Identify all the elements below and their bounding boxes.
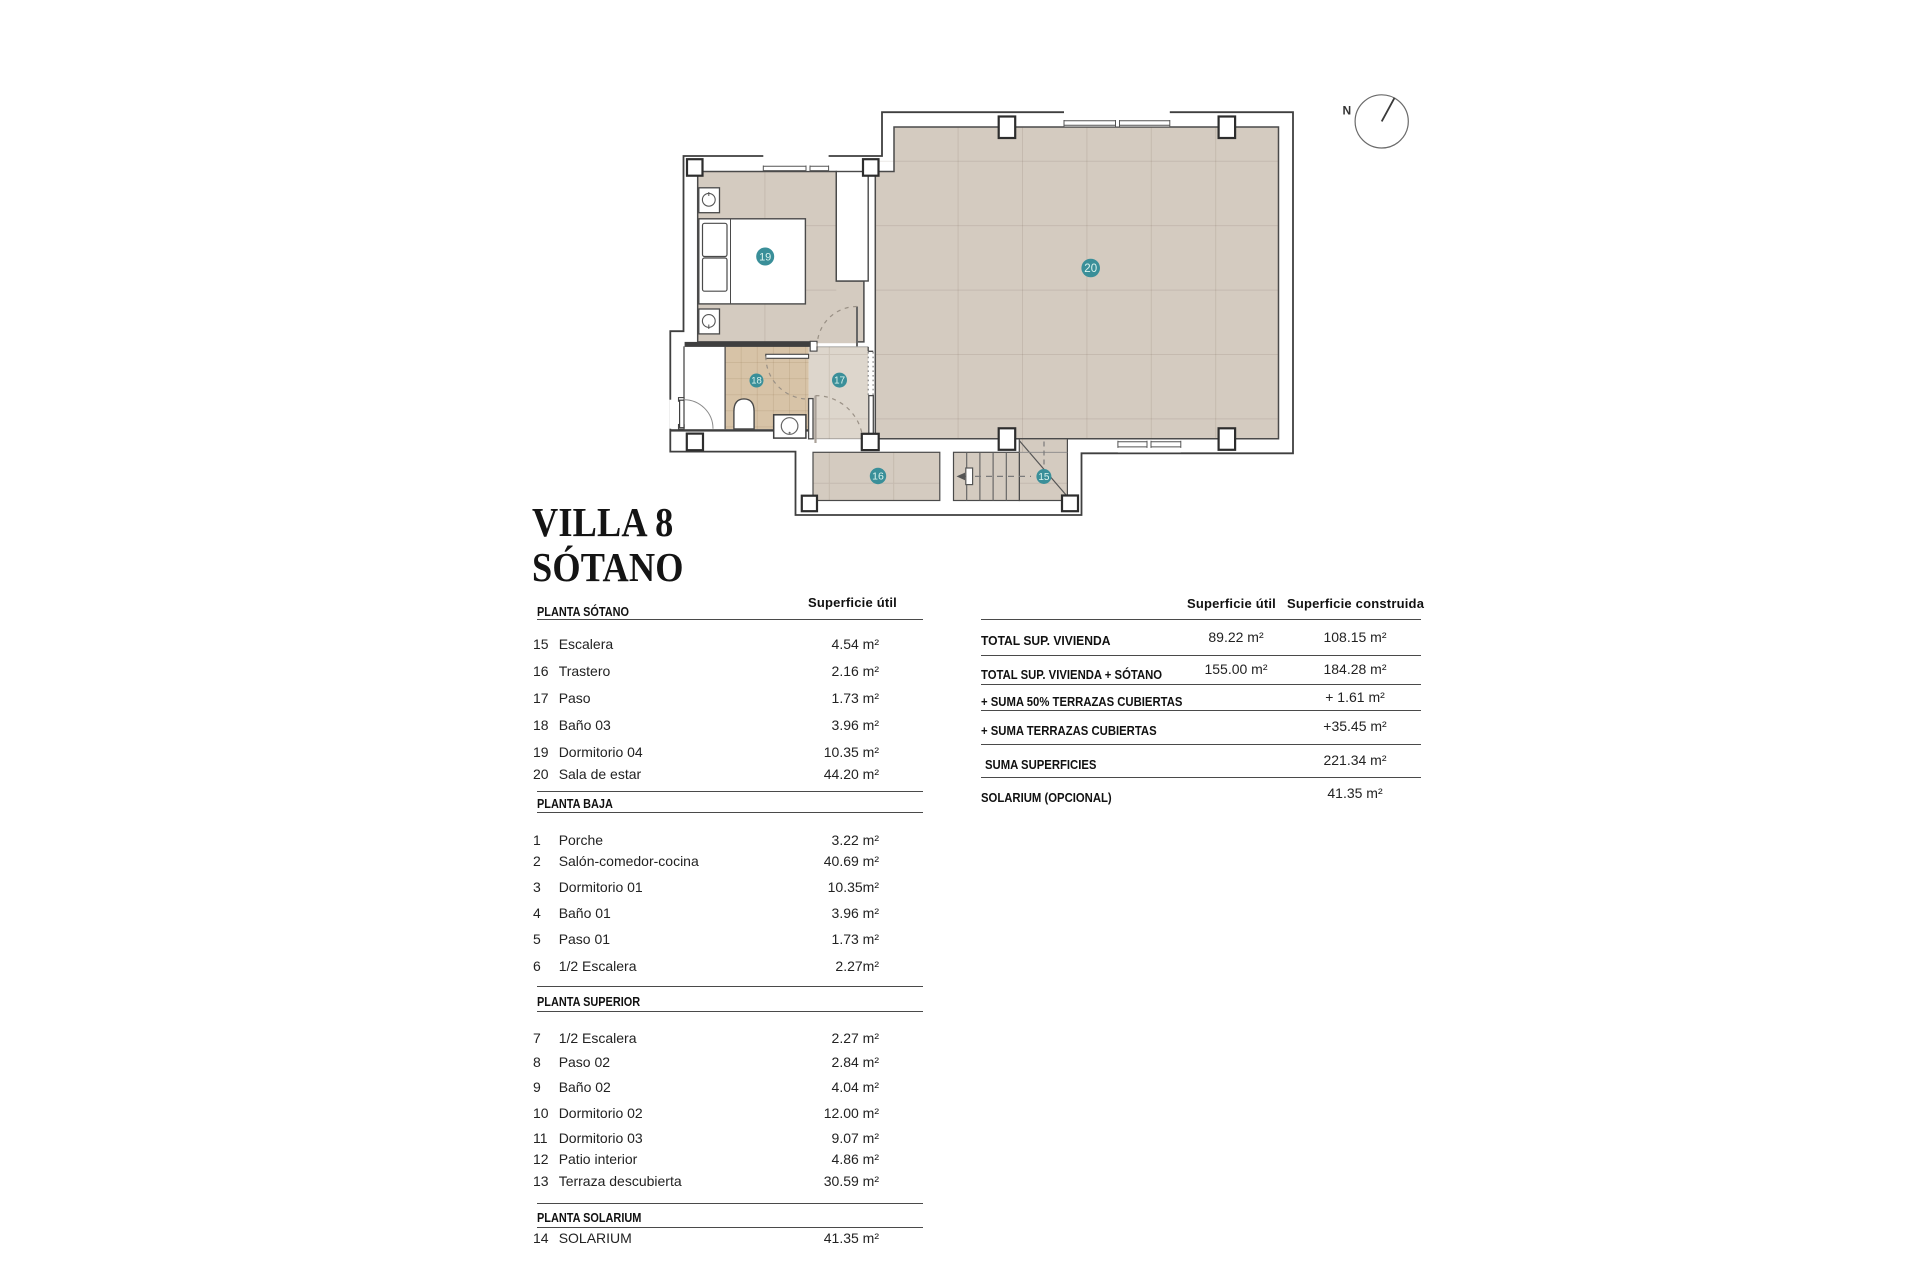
svg-text:N: N <box>1343 104 1352 118</box>
svg-text:17: 17 <box>834 376 846 387</box>
svg-text:18: 18 <box>751 376 762 387</box>
svg-text:20: 20 <box>1084 263 1097 275</box>
svg-text:19: 19 <box>759 251 771 263</box>
svg-text:16: 16 <box>872 471 884 483</box>
svg-text:15: 15 <box>1038 472 1050 483</box>
